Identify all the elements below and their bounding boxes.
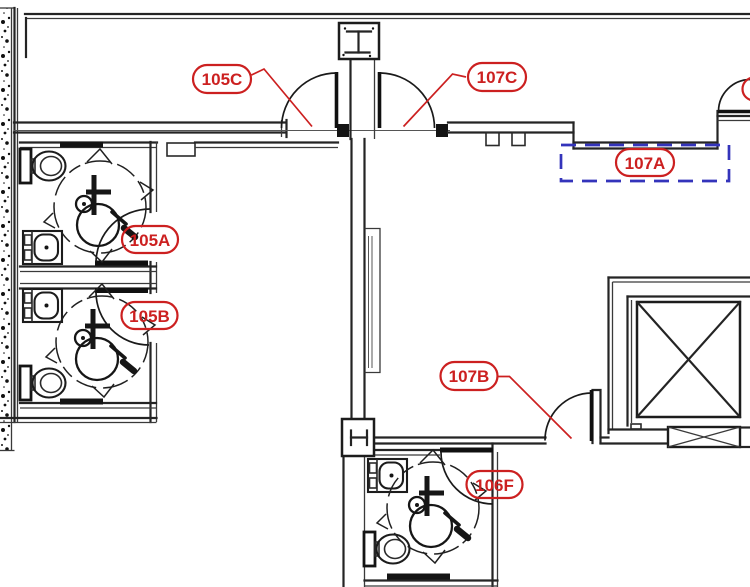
room-tag-label: 105B (129, 307, 170, 326)
room-tag-label: 107A (625, 154, 666, 173)
room-tag-107a[interactable]: 107A (616, 149, 674, 176)
steel-column-i-beam-icon (339, 23, 379, 59)
room-tag-107b[interactable]: 107B (441, 362, 498, 390)
sink-icon (368, 459, 407, 492)
toilet-icon (20, 366, 66, 400)
room-tag-label: 107B (449, 367, 490, 386)
floor-plan-viewport: 105C 107C 105A 105B 107A 107B 106F (0, 0, 750, 587)
steel-column-h-icon (342, 419, 374, 456)
toilet-icon (20, 149, 66, 183)
toilet-icon (364, 532, 410, 566)
floor-plan-canvas: 105C 107C 105A 105B 107A 107B 106F (0, 0, 750, 587)
sink-icon (23, 289, 62, 322)
room-tag-label: 106F (475, 476, 514, 495)
room-tag-106f[interactable]: 106F (467, 471, 523, 498)
elevator-door-sill-x-icon (668, 427, 740, 447)
room-tag-label: 105C (202, 70, 243, 89)
room-tag-label: 107C (477, 68, 518, 87)
elevator-cab-x-icon (637, 302, 740, 417)
exterior-wall-stipple-hatch (0, 8, 18, 451)
room-tag-label: 105A (130, 231, 171, 250)
room-tag-107c[interactable]: 107C (468, 63, 526, 91)
wheelchair-accessible-icon (76, 175, 135, 246)
elevator-shaft (609, 278, 750, 448)
wheelchair-accessible-icon (409, 476, 468, 547)
door-swing-107b (545, 390, 592, 441)
room-tag-105b[interactable]: 105B (122, 302, 178, 329)
room-tag-105a[interactable]: 105A (122, 226, 178, 253)
door-swing-107c (380, 72, 435, 128)
walls (0, 14, 750, 587)
room-tag-105c[interactable]: 105C (193, 65, 251, 93)
sink-icon (23, 231, 62, 264)
